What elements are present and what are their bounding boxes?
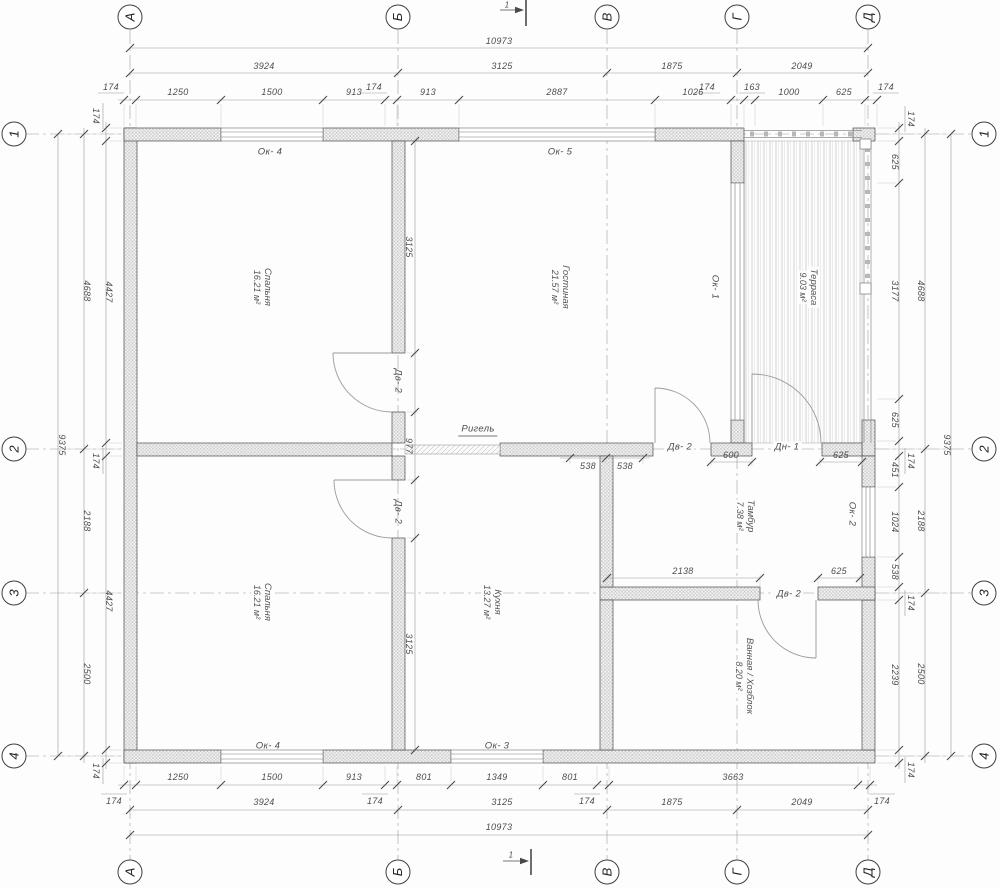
dim-left-mid-2: 2500 — [82, 663, 92, 684]
room-name: Терраса — [808, 267, 819, 308]
dim-bottom-leader-1: 174 — [367, 796, 383, 806]
dim-right-mid-0: 4688 — [916, 280, 926, 301]
dim-bottom-leader-3: 174 — [874, 796, 890, 806]
room-label-bedroom-1: Спальня 16.21 м² — [251, 266, 273, 308]
dim-top-detail-0: 1250 — [167, 87, 188, 97]
axis-label: 4 — [976, 752, 991, 759]
axis-bubble-row-1-right: 1 — [972, 122, 997, 147]
room-label-bathroom: Ванная / Хозблок 8.20 м² — [733, 636, 755, 716]
axis-label: 3 — [6, 589, 21, 596]
axis-bubble-col-g-bottom: Г — [725, 860, 750, 885]
axis-bubble-col-a-top: А — [118, 5, 143, 30]
dim-top-leader-3: 163 — [744, 82, 760, 92]
door-tag-dv2-upper: Дв- 2 — [393, 369, 404, 393]
dim-left-wall-0: 174 — [91, 108, 101, 124]
window-tag-ok4-top: Ок- 4 — [258, 147, 282, 158]
dim-right-mid-2: 2500 — [916, 663, 926, 684]
dim-bottom-detail-6: 3663 — [722, 772, 743, 782]
window-tag-ok4-bottom: Ок- 4 — [256, 741, 280, 752]
dim-top-detail-6: 1000 — [778, 87, 799, 97]
window-tag-ok1: Ок- 1 — [710, 275, 721, 299]
dim-right-inner-0: 625 — [890, 154, 900, 170]
room-area: 16.21 м² — [251, 583, 262, 621]
axis-label: А — [122, 13, 137, 22]
dim-bottom-detail-4: 1349 — [486, 772, 507, 782]
dim-interior-625-bottom: 625 — [831, 566, 847, 576]
axis-bubble-row-4-left: 4 — [2, 744, 27, 769]
dim-left-inner-0: 4427 — [104, 281, 114, 302]
room-area: 8.20 м² — [733, 659, 744, 692]
dim-right-inner-1: 3177 — [890, 280, 900, 301]
axis-label: В — [599, 13, 614, 22]
room-label-tambour: Тамбур 7.38 м² — [734, 498, 756, 535]
axis-bubble-col-v-bottom: В — [595, 860, 620, 885]
room-name: Кухня — [492, 587, 503, 616]
dim-right-inner-4: 1024 — [890, 511, 900, 532]
axis-label: 2 — [976, 445, 991, 452]
axis-label: Б — [391, 13, 406, 21]
door-tag-dn1: Дн- 1 — [773, 442, 802, 453]
dim-top-leader-2: 174 — [699, 82, 715, 92]
dim-bottom-detail-0: 1250 — [167, 772, 188, 782]
d im-right-wall-1: 174 — [906, 453, 916, 469]
dim-right-inner-5: 538 — [890, 564, 900, 580]
dim-top-overall: 10973 — [486, 36, 513, 46]
dim-left-wall-2: 174 — [91, 763, 101, 779]
dim-right-inner-6: 2239 — [890, 664, 900, 685]
axis-label: 1 — [976, 130, 991, 137]
dim-interior-538-left: 538 — [580, 461, 596, 471]
dim-bottom-detail-1: 1500 — [261, 772, 282, 782]
axis-label: Г — [729, 868, 744, 875]
dim-bottom-detail-3: 801 — [416, 772, 432, 782]
dim-interior-v-top: 3125 — [404, 236, 414, 257]
axis-bubble-row-3-right: 3 — [972, 581, 997, 606]
dim-top-mid-1: 3125 — [491, 61, 512, 71]
room-name: Ванная / Хозблок — [744, 636, 755, 716]
dim-interior-625-top: 625 — [833, 450, 849, 460]
dim-bottom-detail-2: 913 — [346, 772, 362, 782]
dim-bottom-mid-0: 3924 — [253, 797, 274, 807]
dim-interior-v-mid: 977 — [404, 438, 414, 454]
dim-left-overall: 9375 — [57, 434, 67, 455]
window-tag-ok3: Ок- 3 — [485, 741, 509, 752]
dim-right-inner-3: 451 — [890, 462, 900, 478]
dim-top-leader-0: 174 — [103, 82, 119, 92]
room-label-living: Гостиная 21.57 м² — [549, 263, 571, 310]
room-name: Спальня — [262, 581, 273, 623]
dim-bottom-mid-2: 1875 — [661, 797, 682, 807]
dim-bottom-overall: 10973 — [486, 822, 513, 832]
dim-interior-538-right: 538 — [617, 461, 633, 471]
axis-bubble-row-4-right: 4 — [972, 744, 997, 769]
room-label-bedroom-2: Спальня 16.21 м² — [251, 581, 273, 623]
axis-bubble-col-a-bottom: А — [118, 860, 143, 885]
axis-bubble-row-1-left: 1 — [2, 122, 27, 147]
axis-label: 4 — [6, 752, 21, 759]
section-mark-bottom: 1 — [509, 851, 514, 860]
dim-top-detail-4: 2887 — [546, 87, 567, 97]
dim-right-wall-0: 174 — [906, 111, 916, 127]
dim-right-overall: 9375 — [942, 434, 952, 455]
dim-bottom-mid-3: 2049 — [791, 797, 812, 807]
dim-bottom-leader-2: 174 — [579, 796, 595, 806]
plan-linework — [0, 0, 1000, 889]
dim-bottom-leader-0: 174 — [106, 796, 122, 806]
dim-top-mid-2: 1875 — [661, 61, 682, 71]
axis-label: 3 — [976, 589, 991, 596]
axis-bubble-col-v-top: В — [595, 5, 620, 30]
dim-top-detail-2: 913 — [346, 87, 362, 97]
axis-label: Б — [391, 868, 406, 876]
dim-left-inner-1: 4427 — [104, 590, 114, 611]
axis-label: В — [599, 868, 614, 877]
door-tag-dv2-lower: Дв- 2 — [393, 500, 404, 524]
axis-label: 2 — [6, 445, 21, 452]
dim-right-inner-2: 625 — [890, 412, 900, 428]
dim-left-wall-1: 174 — [91, 453, 101, 469]
room-area: 16.21 м² — [251, 268, 262, 306]
dim-top-leader-4: 174 — [878, 82, 894, 92]
dim-interior-2138: 2138 — [672, 566, 693, 576]
axis-bubble-col-g-top: Г — [725, 5, 750, 30]
floor-plan-sheet: А Б В Г Д А Б В Г Д 1 2 3 4 1 2 3 4 1 1 … — [0, 0, 1000, 889]
dim-right-mid-1: 2188 — [916, 510, 926, 531]
dim-interior-v-bottom: 3125 — [404, 633, 414, 654]
window-tag-ok5: Ок- 5 — [548, 147, 572, 158]
room-area: 9.03 м² — [797, 270, 808, 303]
dim-left-mid-0: 4688 — [82, 280, 92, 301]
room-name: Тамбур — [745, 498, 756, 535]
room-area: 7.38 м² — [734, 499, 745, 532]
room-area: 13.27 м² — [481, 583, 492, 621]
door-tag-dv2-bath: Дв- 2 — [775, 589, 803, 600]
room-label-kitchen: Кухня 13.27 м² — [481, 583, 503, 621]
dim-top-detail-7: 625 — [836, 87, 852, 97]
axis-label: А — [122, 868, 137, 877]
dim-top-detail-1: 1500 — [261, 87, 282, 97]
room-area: 21.57 м² — [549, 268, 560, 306]
room-name: Гостиная — [560, 263, 571, 310]
axis-bubble-col-d-top: Д — [856, 5, 881, 30]
dim-bottom-mid-1: 3125 — [491, 797, 512, 807]
dim-interior-600: 600 — [723, 450, 739, 460]
axis-label: 1 — [6, 130, 21, 137]
axis-bubble-row-3-left: 3 — [2, 581, 27, 606]
door-tag-dv2-tambour: Дв- 2 — [666, 442, 694, 453]
dim-right-wall-3: 174 — [906, 762, 916, 778]
dim-right-wall-2: 174 — [906, 595, 916, 611]
window-tag-ok2: Ок- 2 — [847, 502, 858, 526]
room-name: Спальня — [262, 266, 273, 308]
axis-label: Д — [861, 12, 876, 21]
dim-top-leader-1: 174 — [366, 82, 382, 92]
section-mark-top: 1 — [505, 1, 510, 10]
room-label-terrace: Терраса 9.03 м² — [797, 267, 819, 308]
beam-label: Ригель — [458, 424, 497, 437]
axis-bubble-col-b-top: Б — [386, 5, 411, 30]
axis-label: Г — [729, 13, 744, 20]
dim-bottom-detail-5: 801 — [562, 772, 578, 782]
dim-top-detail-3: 913 — [420, 87, 436, 97]
axis-label: Д — [861, 867, 876, 876]
dim-top-mid-0: 3924 — [253, 61, 274, 71]
axis-bubble-col-d-bottom: Д — [856, 860, 881, 885]
dim-top-mid-3: 2049 — [791, 61, 812, 71]
axis-bubble-row-2-right: 2 — [972, 437, 997, 462]
axis-bubble-row-2-left: 2 — [2, 437, 27, 462]
axis-bubble-col-b-bottom: Б — [386, 860, 411, 885]
dim-left-mid-1: 2188 — [82, 510, 92, 531]
